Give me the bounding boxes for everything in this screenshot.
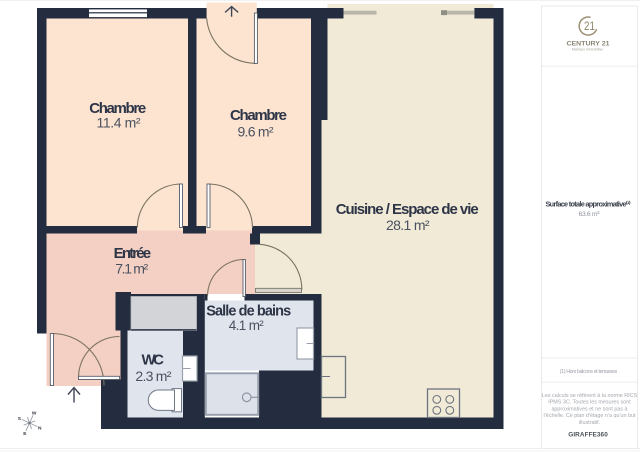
svg-text:21: 21: [584, 19, 595, 33]
svg-text:7.1 m²: 7.1 m²: [115, 261, 148, 277]
svg-text:Entrée: Entrée: [114, 245, 152, 262]
svg-text:2.3 m²: 2.3 m²: [135, 368, 171, 384]
svg-text:W: W: [32, 411, 37, 417]
svg-text:WC: WC: [141, 351, 164, 368]
svg-text:Malraux Immobilier: Malraux Immobilier: [572, 46, 604, 51]
svg-text:Les calculs se réfèrent à la n: Les calculs se réfèrent à la norme RICS: [542, 393, 638, 399]
svg-text:28.1 m²: 28.1 m²: [386, 217, 430, 233]
svg-text:N: N: [38, 425, 42, 431]
svg-text:11.4 m²: 11.4 m²: [97, 115, 141, 131]
svg-text:9.6 m²: 9.6 m²: [238, 123, 274, 139]
svg-text:Chambre: Chambre: [230, 107, 287, 124]
svg-text:IPMS 3C. Toutes les mesures so: IPMS 3C. Toutes les mesures sont: [548, 400, 631, 406]
svg-text:approximatives et ne sont pas: approximatives et ne sont pas à: [551, 406, 627, 412]
svg-text:l'échelle. Ce plan d'étage n'a: l'échelle. Ce plan d'étage n'a qu'un but: [544, 413, 636, 419]
svg-text:(1) Hors balcons et terrasses: (1) Hors balcons et terrasses: [560, 369, 618, 375]
svg-text:4.1 m²: 4.1 m²: [229, 318, 264, 333]
svg-text:63.6 m²: 63.6 m²: [579, 211, 601, 218]
svg-text:GIRAFFE360: GIRAFFE360: [568, 432, 608, 439]
svg-text:Cuisine / Espace de vie: Cuisine / Espace de vie: [336, 201, 479, 218]
svg-text:Surface totale approximative⁽¹: Surface totale approximative⁽¹⁾: [546, 200, 631, 209]
svg-text:illustratif.: illustratif.: [579, 420, 600, 426]
